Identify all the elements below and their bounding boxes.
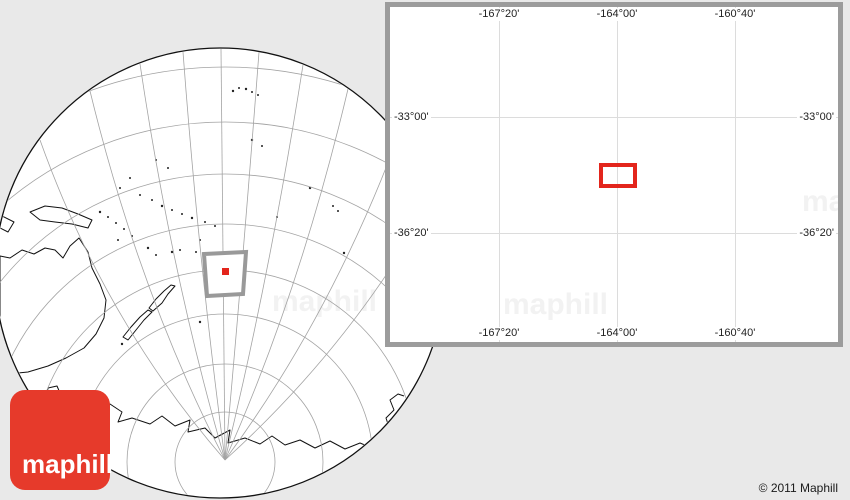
- detail-map-panel: maphill maphill -167°20' -164°00' -160°4…: [385, 2, 843, 347]
- longitude-tick-label: -167°20': [477, 327, 522, 340]
- maphill-logo-text: maphill: [22, 449, 113, 480]
- gridline-vertical: [499, 7, 500, 342]
- latitude-tick-label: -36°20': [392, 227, 431, 240]
- maphill-logo: maphill: [10, 390, 110, 490]
- indonesia-fragments: [0, 150, 12, 170]
- latitude-tick-label: -33°00': [797, 111, 836, 124]
- location-extent-rectangle: [599, 163, 637, 188]
- globe-location-marker: [222, 268, 229, 275]
- longitude-tick-label: -160°40': [713, 8, 758, 21]
- copyright-notice: © 2011 Maphill: [759, 481, 838, 495]
- panel-watermark: maphill: [503, 288, 608, 322]
- gridline-horizontal: [390, 233, 838, 234]
- panel-watermark-partial: maphill: [802, 185, 838, 219]
- longitude-tick-label: -167°20': [477, 8, 522, 21]
- gridline-vertical: [735, 7, 736, 342]
- longitude-tick-label: -164°00': [595, 8, 640, 21]
- latitude-tick-label: -33°00': [392, 111, 431, 124]
- longitude-tick-label: -164°00': [595, 327, 640, 340]
- gridline-horizontal: [390, 117, 838, 118]
- detail-map-area: maphill maphill -167°20' -164°00' -160°4…: [390, 7, 838, 342]
- latitude-tick-label: -36°20': [797, 227, 836, 240]
- longitude-tick-label: -160°40': [713, 327, 758, 340]
